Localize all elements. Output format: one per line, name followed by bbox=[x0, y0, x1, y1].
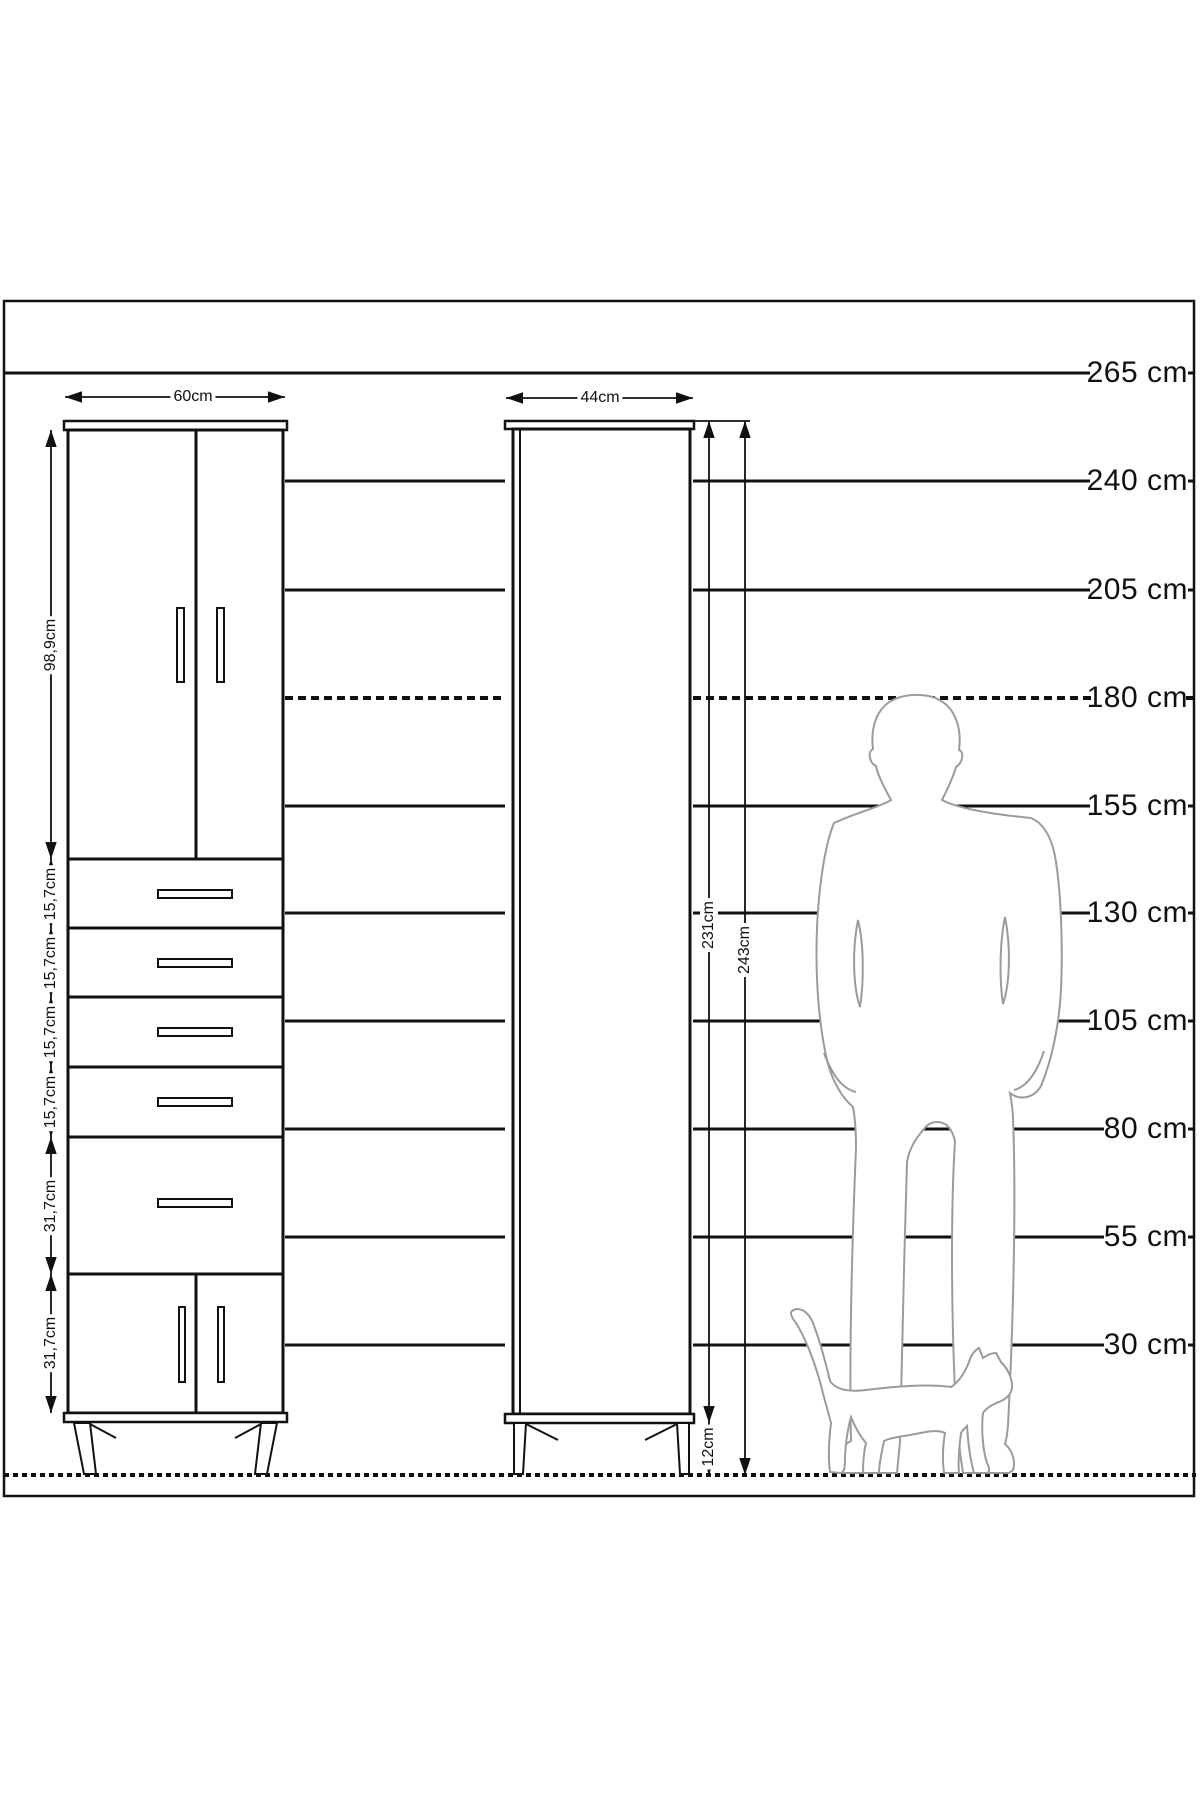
total-height-label: 243cm bbox=[736, 923, 754, 977]
ruler-label-105: 105 cm bbox=[968, 1002, 1188, 1040]
ruler-label-265: 265 cm bbox=[968, 354, 1188, 392]
ruler-label-205: 205 cm bbox=[968, 571, 1188, 609]
body-height-label: 231cm bbox=[700, 898, 718, 952]
left-cabinet-legs bbox=[74, 1423, 277, 1474]
leg-height-label: 12cm bbox=[700, 1424, 718, 1469]
big-drawer-height-label: 31,7cm bbox=[42, 1177, 60, 1235]
ruler-label-180: 180 cm bbox=[968, 679, 1188, 717]
ruler-label-80: 80 cm bbox=[968, 1110, 1188, 1148]
ruler-label-240: 240 cm bbox=[968, 462, 1188, 500]
lower-doors-height-label: 31,7cm bbox=[42, 1314, 60, 1372]
right-cabinet-legs bbox=[514, 1423, 689, 1474]
ruler-label-155: 155 cm bbox=[968, 787, 1188, 825]
ruler-label-30: 30 cm bbox=[968, 1326, 1188, 1364]
left-cabinet-width-label: 60cm bbox=[170, 388, 215, 406]
right-cabinet-drawing bbox=[505, 421, 694, 1474]
right-cabinet-width-label: 44cm bbox=[577, 389, 622, 407]
drawer-height-label-1: 15,7cm bbox=[42, 865, 60, 923]
ruler-label-130: 130 cm bbox=[968, 894, 1188, 932]
drawer-height-label-3: 15,7cm bbox=[42, 1003, 60, 1061]
ruler-label-55: 55 cm bbox=[968, 1218, 1188, 1256]
drawer-height-label-2: 15,7cm bbox=[42, 934, 60, 992]
left-cabinet-drawing bbox=[64, 421, 287, 1474]
dimension-diagram-page: 265 cm 240 cm 205 cm 180 cm 155 cm 130 c… bbox=[0, 0, 1200, 1800]
drawer-height-label-4: 15,7cm bbox=[42, 1073, 60, 1131]
upper-doors-height-label: 98,9cm bbox=[42, 616, 60, 674]
